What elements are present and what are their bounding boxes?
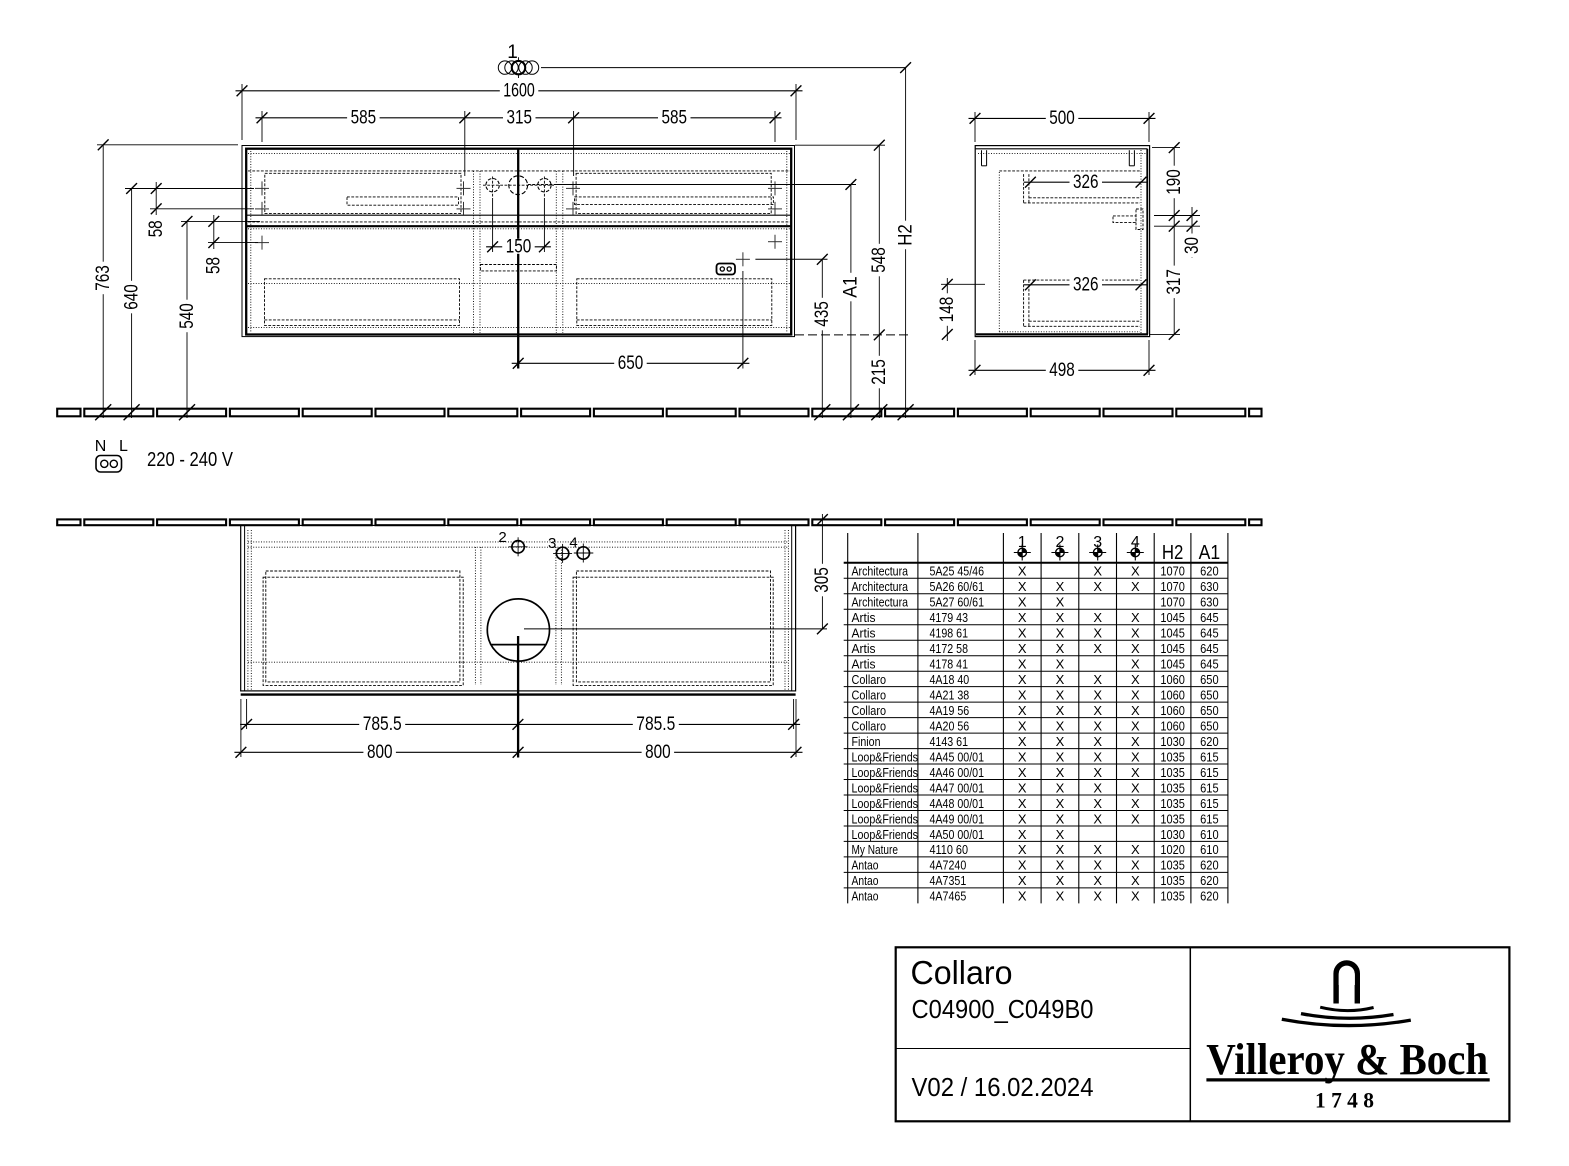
svg-text:X: X [1093, 842, 1102, 857]
svg-text:X: X [1093, 687, 1102, 702]
svg-text:X: X [1093, 749, 1102, 764]
svg-text:220 - 240 V: 220 - 240 V [147, 449, 234, 471]
svg-text:620: 620 [1200, 858, 1219, 873]
svg-text:1020: 1020 [1160, 842, 1185, 857]
svg-text:1035: 1035 [1160, 780, 1185, 795]
svg-text:X: X [1131, 842, 1140, 857]
svg-text:X: X [1131, 641, 1140, 656]
svg-text:1045: 1045 [1160, 626, 1185, 641]
svg-text:610: 610 [1200, 827, 1219, 842]
svg-text:A1: A1 [841, 276, 862, 298]
svg-text:630: 630 [1200, 579, 1219, 594]
svg-text:317: 317 [1164, 269, 1185, 295]
svg-text:X: X [1093, 796, 1102, 811]
svg-text:650: 650 [1200, 687, 1219, 702]
svg-text:X: X [1018, 749, 1027, 764]
svg-text:X: X [1093, 703, 1102, 718]
svg-text:X: X [1131, 811, 1140, 826]
svg-text:4A50 00/01: 4A50 00/01 [930, 827, 985, 842]
svg-text:X: X [1018, 564, 1027, 579]
svg-text:Artis: Artis [852, 610, 876, 625]
svg-text:620: 620 [1200, 889, 1219, 904]
svg-text:620: 620 [1200, 734, 1219, 749]
svg-text:X: X [1018, 873, 1027, 888]
svg-text:X: X [1093, 765, 1102, 780]
svg-text:Loop&Friends: Loop&Friends [852, 796, 919, 811]
svg-text:615: 615 [1200, 780, 1219, 795]
svg-text:615: 615 [1200, 796, 1219, 811]
svg-text:X: X [1018, 626, 1027, 641]
svg-text:X: X [1093, 610, 1102, 625]
svg-text:4A18 40: 4A18 40 [930, 672, 970, 687]
svg-text:Antao: Antao [852, 889, 879, 904]
svg-text:X: X [1131, 780, 1140, 795]
svg-text:30: 30 [1182, 237, 1203, 254]
svg-text:645: 645 [1200, 610, 1219, 625]
svg-text:5A27 60/61: 5A27 60/61 [930, 595, 985, 610]
svg-text:X: X [1018, 703, 1027, 718]
svg-text:A1: A1 [1199, 542, 1221, 564]
svg-text:X: X [1093, 811, 1102, 826]
svg-text:X: X [1131, 672, 1140, 687]
svg-text:X: X [1018, 734, 1027, 749]
svg-text:4A7465: 4A7465 [930, 889, 967, 904]
svg-text:X: X [1131, 873, 1140, 888]
svg-text:X: X [1056, 610, 1065, 625]
svg-text:X: X [1056, 641, 1065, 656]
svg-text:X: X [1018, 610, 1027, 625]
svg-text:X: X [1018, 641, 1027, 656]
svg-text:4A45 00/01: 4A45 00/01 [930, 749, 985, 764]
svg-text:150: 150 [506, 237, 532, 258]
svg-text:X: X [1093, 579, 1102, 594]
svg-text:615: 615 [1200, 749, 1219, 764]
svg-text:X: X [1056, 765, 1065, 780]
svg-text:X: X [1131, 889, 1140, 904]
svg-text:5A26 60/61: 5A26 60/61 [930, 579, 985, 594]
svg-text:X: X [1018, 858, 1027, 873]
svg-text:Loop&Friends: Loop&Friends [852, 765, 919, 780]
svg-text:190: 190 [1164, 169, 1185, 195]
svg-text:X: X [1131, 703, 1140, 718]
svg-text:Antao: Antao [852, 858, 879, 873]
svg-text:4: 4 [569, 534, 577, 551]
svg-text:X: X [1056, 579, 1065, 594]
svg-text:X: X [1018, 811, 1027, 826]
svg-text:326: 326 [1073, 172, 1099, 193]
svg-text:215: 215 [869, 359, 890, 385]
svg-text:1600: 1600 [503, 81, 535, 102]
svg-text:X: X [1056, 657, 1065, 672]
svg-text:X: X [1131, 564, 1140, 579]
svg-text:X: X [1093, 641, 1102, 656]
svg-text:Collaro: Collaro [852, 687, 887, 702]
svg-text:X: X [1056, 780, 1065, 795]
svg-text:4179 43: 4179 43 [930, 610, 969, 625]
svg-text:X: X [1131, 749, 1140, 764]
svg-text:Collaro: Collaro [852, 703, 887, 718]
svg-text:1060: 1060 [1160, 687, 1185, 702]
svg-text:X: X [1093, 672, 1102, 687]
svg-text:X: X [1056, 718, 1065, 733]
svg-text:4A21 38: 4A21 38 [930, 687, 970, 702]
svg-text:4A7351: 4A7351 [930, 873, 967, 888]
svg-text:1035: 1035 [1160, 749, 1185, 764]
svg-text:Villeroy & Boch: Villeroy & Boch [1206, 1035, 1488, 1084]
svg-text:Antao: Antao [852, 873, 879, 888]
svg-text:X: X [1093, 734, 1102, 749]
svg-text:Loop&Friends: Loop&Friends [852, 749, 919, 764]
svg-text:X: X [1018, 657, 1027, 672]
svg-text:1060: 1060 [1160, 672, 1185, 687]
svg-text:1045: 1045 [1160, 610, 1185, 625]
svg-text:1030: 1030 [1160, 827, 1185, 842]
svg-text:X: X [1093, 858, 1102, 873]
svg-text:X: X [1056, 749, 1065, 764]
svg-text:4178 41: 4178 41 [930, 657, 969, 672]
svg-text:645: 645 [1200, 626, 1219, 641]
svg-text:1060: 1060 [1160, 703, 1185, 718]
svg-text:X: X [1018, 780, 1027, 795]
svg-text:X: X [1018, 842, 1027, 857]
svg-text:585: 585 [662, 108, 688, 129]
svg-text:4A19 56: 4A19 56 [930, 703, 970, 718]
svg-text:X: X [1018, 672, 1027, 687]
svg-text:X: X [1131, 657, 1140, 672]
svg-text:Architectura: Architectura [852, 579, 909, 594]
svg-text:X: X [1131, 718, 1140, 733]
svg-text:315: 315 [506, 108, 532, 129]
svg-text:650: 650 [1200, 718, 1219, 733]
svg-text:X: X [1056, 595, 1065, 610]
svg-text:4A46 00/01: 4A46 00/01 [930, 765, 985, 780]
svg-text:X: X [1018, 579, 1027, 594]
svg-text:X: X [1131, 626, 1140, 641]
svg-text:Architectura: Architectura [852, 595, 909, 610]
svg-text:L: L [119, 438, 128, 455]
svg-text:2: 2 [498, 529, 506, 546]
svg-text:N: N [95, 438, 107, 455]
svg-text:1045: 1045 [1160, 641, 1185, 656]
svg-text:4A49 00/01: 4A49 00/01 [930, 811, 985, 826]
svg-text:X: X [1131, 734, 1140, 749]
svg-text:X: X [1131, 858, 1140, 873]
svg-text:X: X [1018, 595, 1027, 610]
svg-text:X: X [1093, 564, 1102, 579]
svg-text:My Nature: My Nature [852, 842, 899, 857]
svg-text:Artis: Artis [852, 626, 876, 641]
svg-text:X: X [1131, 579, 1140, 594]
svg-text:Finion: Finion [852, 734, 881, 749]
svg-text:X: X [1131, 765, 1140, 780]
svg-text:610: 610 [1200, 842, 1219, 857]
svg-text:Loop&Friends: Loop&Friends [852, 811, 919, 826]
svg-text:800: 800 [367, 742, 393, 763]
svg-text:645: 645 [1200, 657, 1219, 672]
svg-text:1070: 1070 [1160, 564, 1185, 579]
svg-text:1045: 1045 [1160, 657, 1185, 672]
svg-text:615: 615 [1200, 811, 1219, 826]
svg-text:Loop&Friends: Loop&Friends [852, 780, 919, 795]
svg-text:650: 650 [618, 353, 644, 374]
svg-text:58: 58 [204, 257, 225, 274]
svg-text:Collaro: Collaro [852, 718, 887, 733]
svg-text:X: X [1131, 796, 1140, 811]
svg-text:785.5: 785.5 [363, 714, 402, 735]
svg-text:4A7240: 4A7240 [930, 858, 967, 873]
svg-text:X: X [1018, 687, 1027, 702]
svg-text:X: X [1018, 827, 1027, 842]
svg-text:548: 548 [869, 247, 890, 273]
svg-text:630: 630 [1200, 595, 1219, 610]
svg-text:X: X [1093, 626, 1102, 641]
svg-text:615: 615 [1200, 765, 1219, 780]
svg-text:1035: 1035 [1160, 796, 1185, 811]
svg-text:3: 3 [548, 535, 556, 552]
svg-text:620: 620 [1200, 873, 1219, 888]
svg-text:498: 498 [1049, 360, 1075, 381]
svg-text:326: 326 [1073, 275, 1099, 296]
svg-text:Collaro: Collaro [911, 954, 1013, 991]
svg-text:148: 148 [937, 297, 958, 323]
svg-text:763: 763 [93, 265, 114, 291]
svg-text:Artis: Artis [852, 657, 876, 672]
svg-text:785.5: 785.5 [636, 714, 675, 735]
svg-text:X: X [1131, 687, 1140, 702]
svg-text:Architectura: Architectura [852, 564, 909, 579]
svg-text:1070: 1070 [1160, 579, 1185, 594]
svg-text:Artis: Artis [852, 641, 876, 656]
svg-text:435: 435 [812, 301, 833, 327]
svg-text:650: 650 [1200, 672, 1219, 687]
svg-text:X: X [1056, 687, 1065, 702]
svg-text:1060: 1060 [1160, 718, 1185, 733]
svg-text:X: X [1056, 827, 1065, 842]
svg-text:X: X [1056, 889, 1065, 904]
svg-text:645: 645 [1200, 641, 1219, 656]
svg-text:X: X [1056, 842, 1065, 857]
svg-text:X: X [1093, 718, 1102, 733]
svg-text:640: 640 [121, 284, 142, 310]
svg-text:X: X [1093, 780, 1102, 795]
svg-text:1 7 4 8: 1 7 4 8 [1315, 1088, 1374, 1113]
svg-text:X: X [1093, 873, 1102, 888]
svg-text:800: 800 [645, 742, 671, 763]
svg-text:X: X [1056, 873, 1065, 888]
svg-text:4A47 00/01: 4A47 00/01 [930, 780, 985, 795]
svg-text:X: X [1056, 734, 1065, 749]
svg-text:305: 305 [812, 567, 833, 593]
svg-text:540: 540 [177, 303, 198, 329]
svg-text:X: X [1018, 765, 1027, 780]
svg-text:500: 500 [1049, 108, 1075, 129]
svg-text:4172 58: 4172 58 [930, 641, 969, 656]
svg-text:X: X [1056, 858, 1065, 873]
svg-text:1035: 1035 [1160, 811, 1185, 826]
svg-text:Loop&Friends: Loop&Friends [852, 827, 919, 842]
svg-text:X: X [1056, 703, 1065, 718]
svg-text:1070: 1070 [1160, 595, 1185, 610]
svg-text:4143 61: 4143 61 [930, 734, 969, 749]
svg-text:1035: 1035 [1160, 889, 1185, 904]
svg-text:5A25 45/46: 5A25 45/46 [930, 564, 985, 579]
svg-text:1035: 1035 [1160, 765, 1185, 780]
svg-text:H2: H2 [1162, 542, 1184, 564]
svg-text:H2: H2 [895, 224, 916, 246]
svg-text:1030: 1030 [1160, 734, 1185, 749]
svg-text:X: X [1018, 718, 1027, 733]
svg-text:X: X [1056, 796, 1065, 811]
svg-text:620: 620 [1200, 564, 1219, 579]
svg-text:4A48 00/01: 4A48 00/01 [930, 796, 985, 811]
svg-text:X: X [1131, 610, 1140, 625]
svg-text:4A20 56: 4A20 56 [930, 718, 970, 733]
svg-text:4198 61: 4198 61 [930, 626, 969, 641]
svg-text:650: 650 [1200, 703, 1219, 718]
svg-text:X: X [1018, 889, 1027, 904]
svg-text:C04900_C049B0: C04900_C049B0 [912, 994, 1094, 1024]
svg-text:1035: 1035 [1160, 873, 1185, 888]
svg-text:585: 585 [351, 108, 377, 129]
svg-text:4110 60: 4110 60 [930, 842, 969, 857]
svg-text:X: X [1018, 796, 1027, 811]
svg-text:V02 / 16.02.2024: V02 / 16.02.2024 [912, 1072, 1094, 1102]
svg-text:58: 58 [146, 220, 167, 237]
svg-text:X: X [1093, 889, 1102, 904]
svg-text:1: 1 [507, 42, 518, 63]
svg-text:Collaro: Collaro [852, 672, 887, 687]
svg-text:X: X [1056, 811, 1065, 826]
svg-text:X: X [1056, 626, 1065, 641]
svg-text:X: X [1056, 672, 1065, 687]
svg-text:1035: 1035 [1160, 858, 1185, 873]
